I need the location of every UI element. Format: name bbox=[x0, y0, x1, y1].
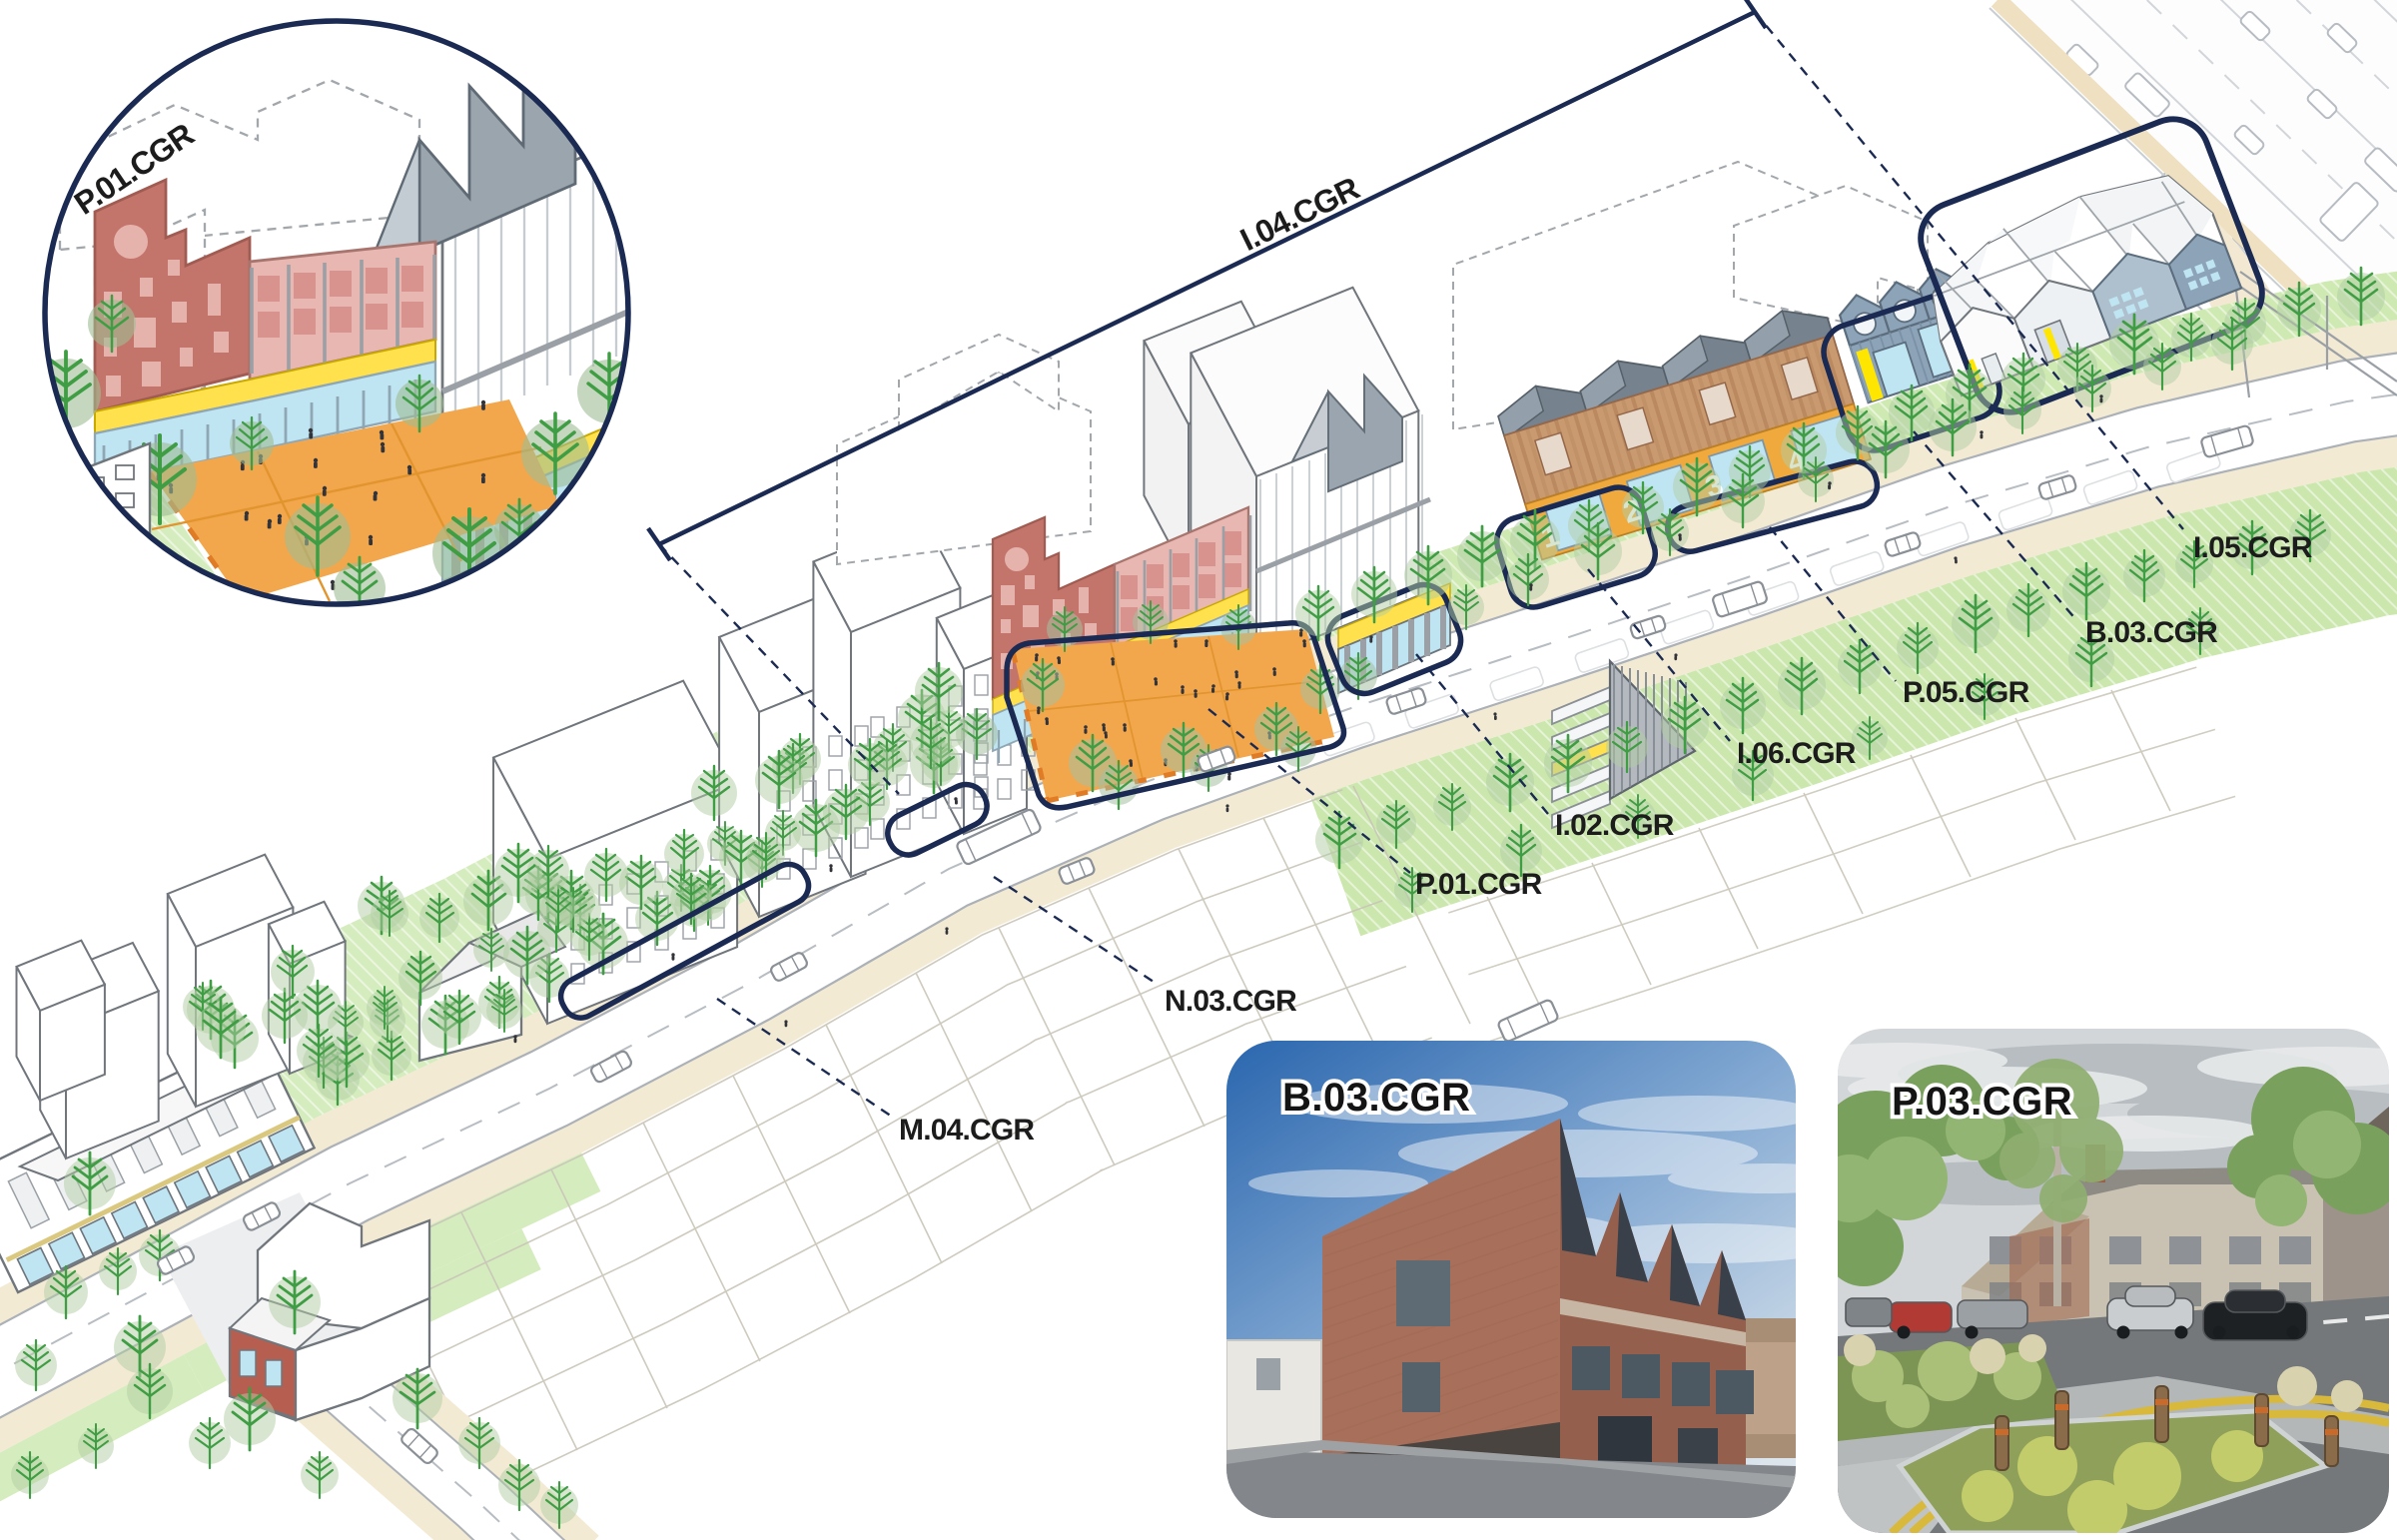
svg-text:I.06.CGR: I.06.CGR bbox=[1737, 737, 1857, 770]
svg-text:P.01.CGR: P.01.CGR bbox=[1415, 868, 1543, 901]
svg-text:B.03.CGR: B.03.CGR bbox=[1282, 1076, 1471, 1120]
svg-text:P.05.CGR: P.05.CGR bbox=[1903, 676, 2030, 709]
svg-text:M.04.CGR: M.04.CGR bbox=[899, 1114, 1035, 1147]
svg-text:B.03.CGR: B.03.CGR bbox=[2085, 616, 2218, 649]
svg-text:I.02.CGR: I.02.CGR bbox=[1555, 809, 1675, 842]
svg-text:I.05.CGR: I.05.CGR bbox=[2193, 531, 2313, 564]
svg-text:P.03.CGR: P.03.CGR bbox=[1892, 1080, 2072, 1124]
svg-text:N.03.CGR: N.03.CGR bbox=[1165, 985, 1297, 1018]
